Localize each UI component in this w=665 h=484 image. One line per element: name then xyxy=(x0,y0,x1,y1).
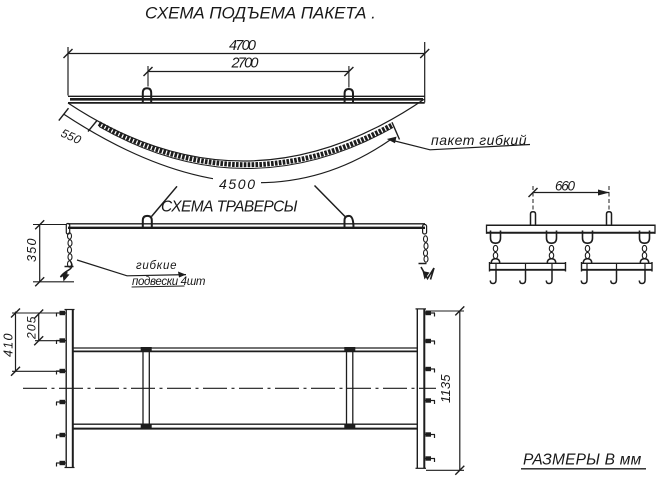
svg-text:2700: 2700 xyxy=(231,56,260,72)
svg-text:СХЕМА ТРАВЕРСЫ: СХЕМА ТРАВЕРСЫ xyxy=(161,199,299,216)
svg-text:410: 410 xyxy=(2,333,16,357)
svg-text:1135: 1135 xyxy=(438,374,453,403)
svg-text:4500: 4500 xyxy=(219,176,256,192)
svg-text:205: 205 xyxy=(25,316,39,340)
svg-text:660: 660 xyxy=(555,179,576,194)
svg-text:СХЕМА ПОДЪЕМА ПАКЕТА .: СХЕМА ПОДЪЕМА ПАКЕТА . xyxy=(145,4,378,23)
svg-text:4700: 4700 xyxy=(229,38,257,54)
svg-text:гибкие: гибкие xyxy=(136,260,177,272)
svg-text:РАЗМЕРЫ В мм: РАЗМЕРЫ В мм xyxy=(523,452,643,469)
svg-text:350: 350 xyxy=(25,238,39,262)
